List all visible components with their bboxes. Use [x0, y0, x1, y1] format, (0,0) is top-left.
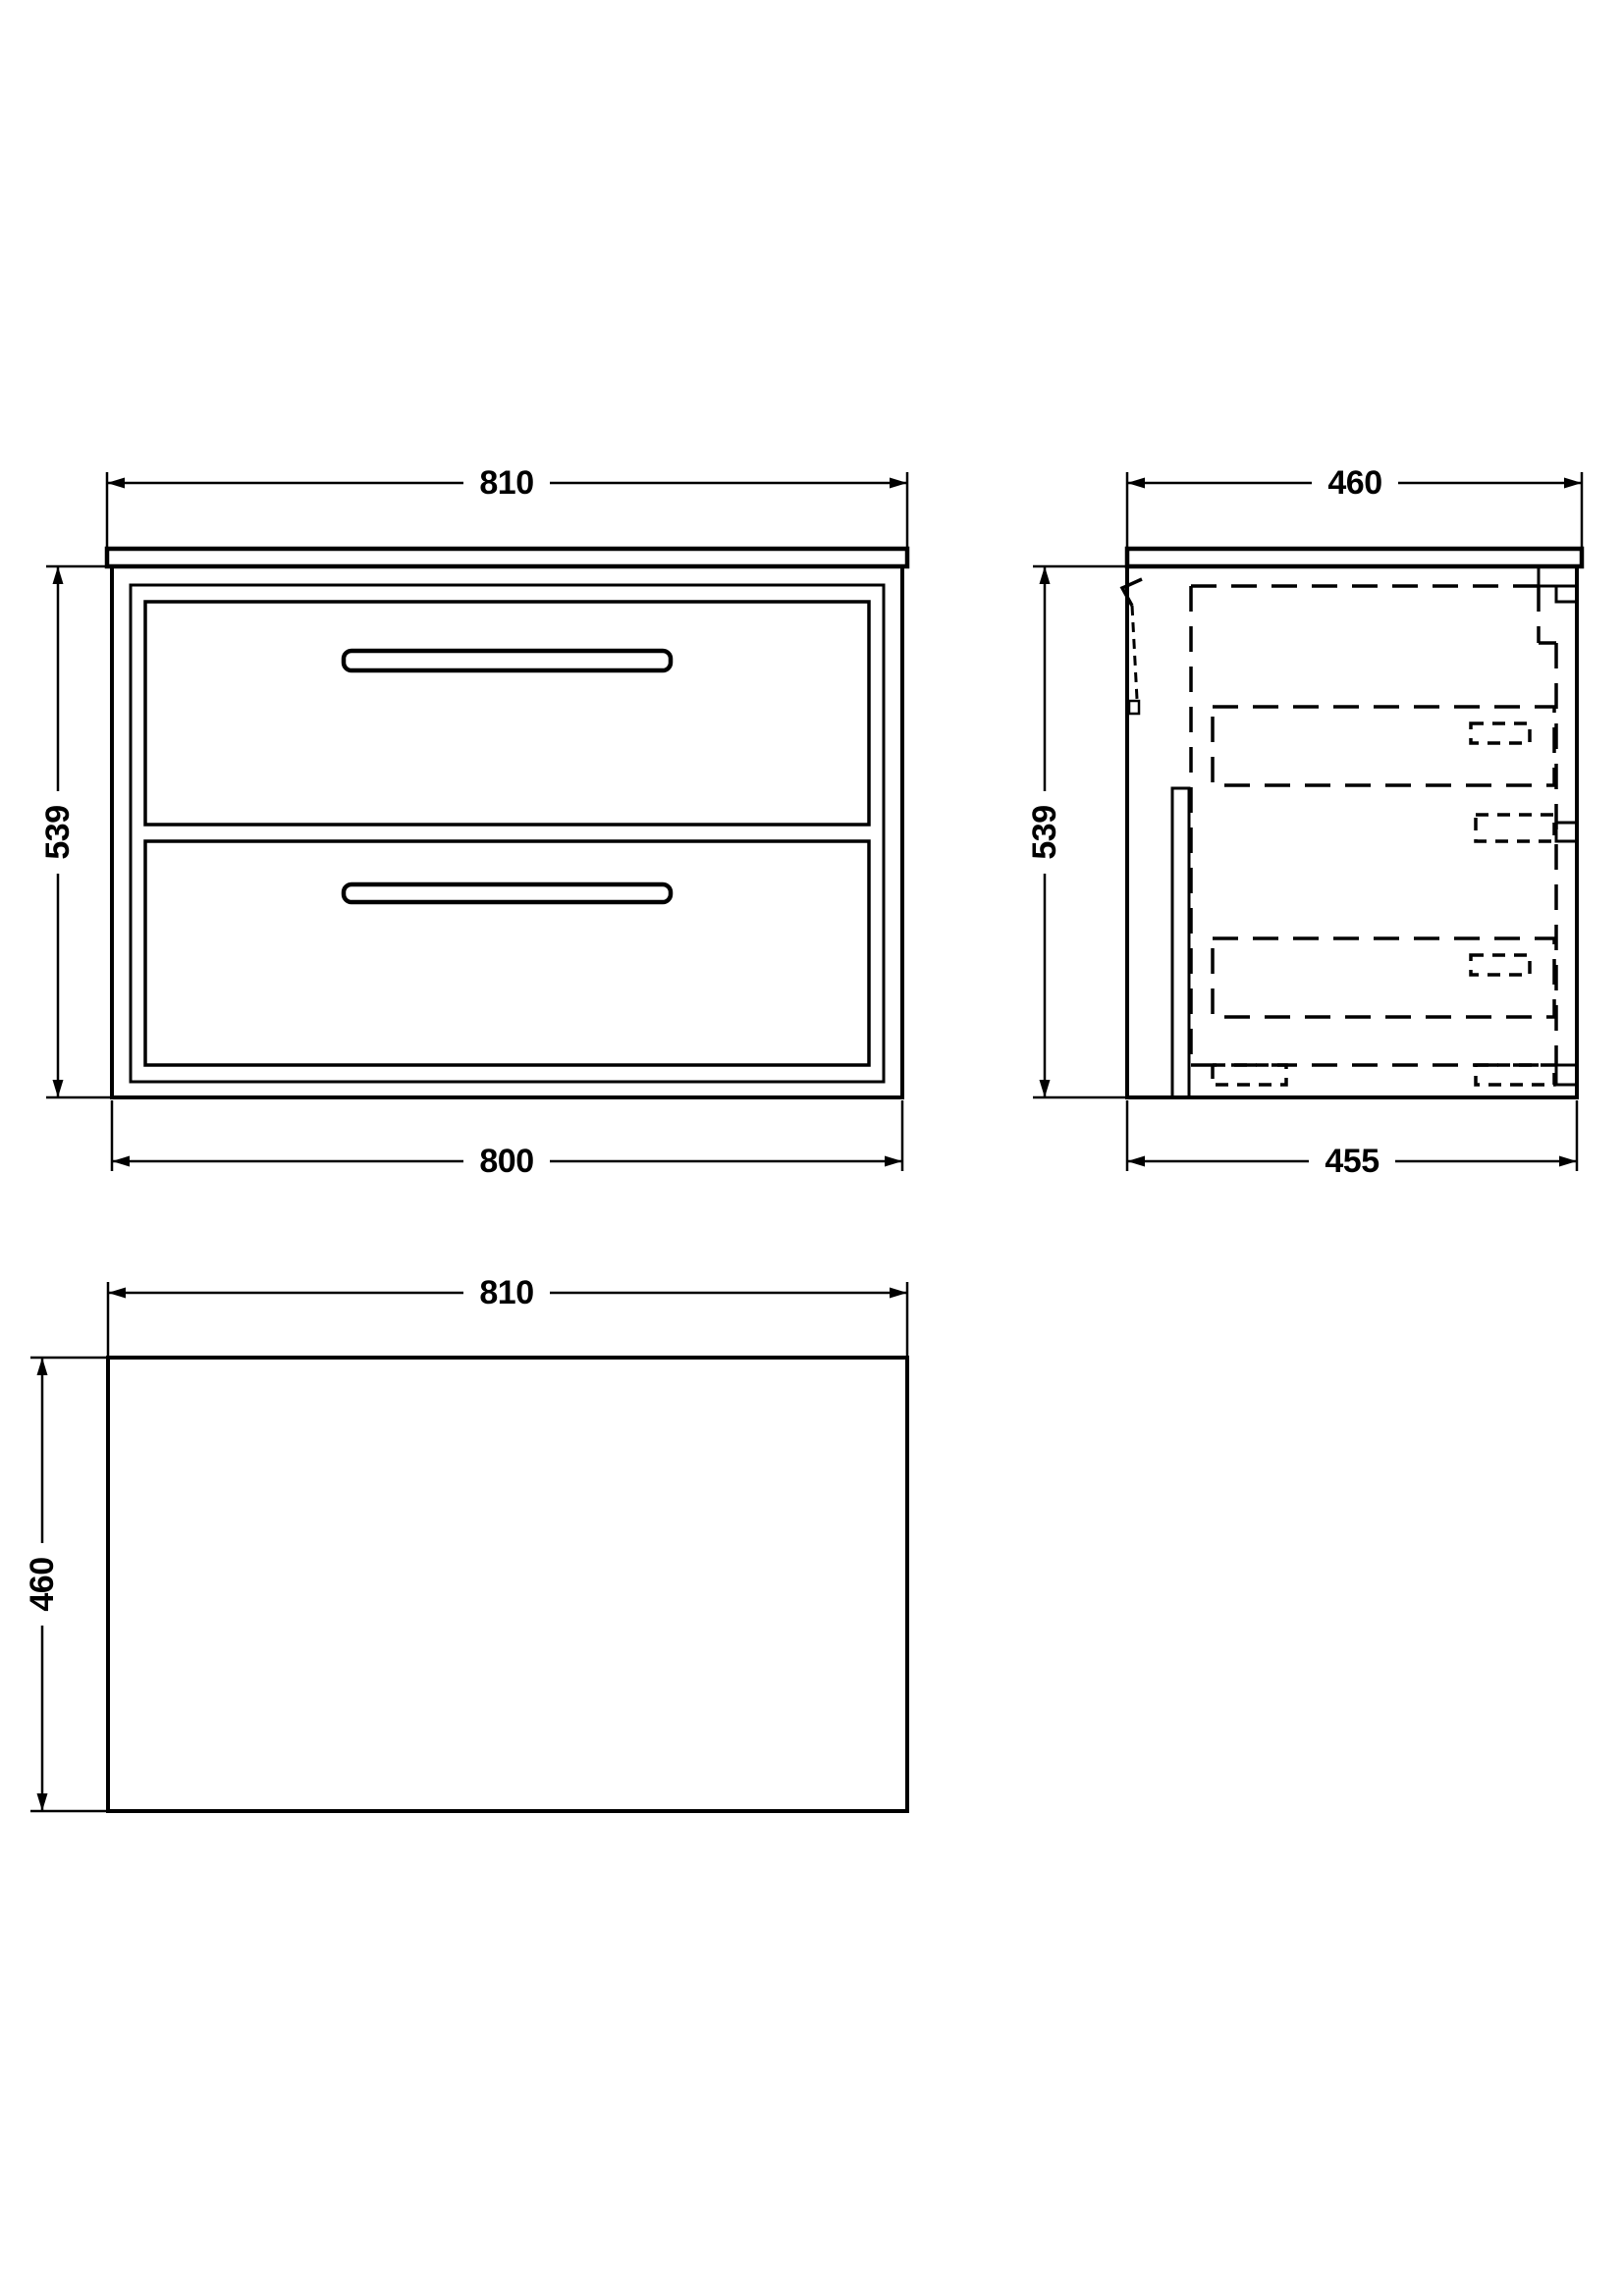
dim-label-side-depth-top: 460 — [1327, 464, 1381, 502]
arrow-up — [53, 566, 64, 584]
drawer-1-box-hidden — [1213, 707, 1554, 785]
dim-label-front-height: 539 — [39, 805, 77, 859]
front-view: 810 539 800 — [39, 464, 907, 1180]
dim-label-plan-depth-left: 460 — [24, 1557, 61, 1611]
dim-label-side-depth-bottom: 455 — [1325, 1143, 1379, 1180]
bottom-runner-left-hidden — [1213, 1065, 1286, 1085]
dim-label-side-height: 539 — [1026, 805, 1063, 859]
arrow-right — [890, 478, 907, 489]
dimension-front-height: 539 — [39, 566, 110, 1097]
arrow-left — [112, 1156, 130, 1167]
drawer-1-handle-hidden — [1471, 723, 1530, 743]
arrow-down — [1040, 1080, 1051, 1097]
dimension-front-width-bottom: 800 — [112, 1100, 902, 1180]
mid-runner-hidden — [1476, 815, 1554, 841]
side-view: 460 539 455 — [1026, 464, 1582, 1180]
front-drawer-1 — [145, 602, 869, 825]
arrow-up — [37, 1358, 48, 1375]
front-cabinet-outline — [112, 566, 902, 1097]
dimension-plan-width-top: 810 — [108, 1274, 907, 1356]
arrow-left — [1127, 1156, 1145, 1167]
arrow-up — [1040, 566, 1051, 584]
arrow-left — [1127, 478, 1145, 489]
side-bottom-runner-block — [1556, 1065, 1577, 1085]
dimension-side-height: 539 — [1026, 566, 1125, 1097]
drawing-sheet: 810 539 800 — [0, 0, 1623, 2296]
side-worktop — [1127, 549, 1582, 566]
front-drawer-2 — [145, 841, 869, 1065]
arrow-down — [53, 1080, 64, 1097]
arrow-right — [890, 1288, 907, 1299]
front-drawer-2-handle — [344, 884, 671, 902]
dim-label-front-width-top: 810 — [479, 464, 533, 502]
side-top-right-block — [1539, 566, 1577, 586]
drawer-2-handle-hidden — [1471, 955, 1530, 975]
bottom-runner-right-hidden — [1476, 1065, 1554, 1085]
dimension-front-width-top: 810 — [107, 464, 907, 547]
dim-label-front-width-bottom: 800 — [479, 1143, 533, 1180]
dimension-side-depth-top: 460 — [1127, 464, 1582, 547]
dimension-side-depth-bottom: 455 — [1127, 1100, 1577, 1180]
technical-drawing-canvas: 810 539 800 — [0, 0, 1623, 2296]
arrow-left — [107, 478, 125, 489]
arrow-right — [1564, 478, 1582, 489]
arrow-right — [885, 1156, 902, 1167]
side-top-right-step — [1556, 586, 1577, 602]
plan-worktop-outline — [108, 1358, 907, 1811]
side-mid-runner-block — [1556, 823, 1577, 841]
plan-view: 810 460 — [24, 1274, 907, 1811]
side-back-rail — [1172, 788, 1189, 1097]
front-drawer-1-handle — [344, 651, 671, 670]
arrow-right — [1559, 1156, 1577, 1167]
arrow-left — [108, 1288, 126, 1299]
front-worktop — [107, 549, 907, 566]
dimension-plan-depth-left: 460 — [24, 1358, 106, 1811]
interior-dashed-outline — [1191, 586, 1556, 1065]
side-hidden-interior — [1191, 586, 1556, 1085]
bracket-foot — [1129, 701, 1139, 714]
bracket-dashed-stem — [1132, 606, 1137, 699]
arrow-down — [37, 1793, 48, 1811]
dim-label-plan-width-top: 810 — [479, 1274, 533, 1311]
drawer-2-box-hidden — [1213, 938, 1554, 1017]
